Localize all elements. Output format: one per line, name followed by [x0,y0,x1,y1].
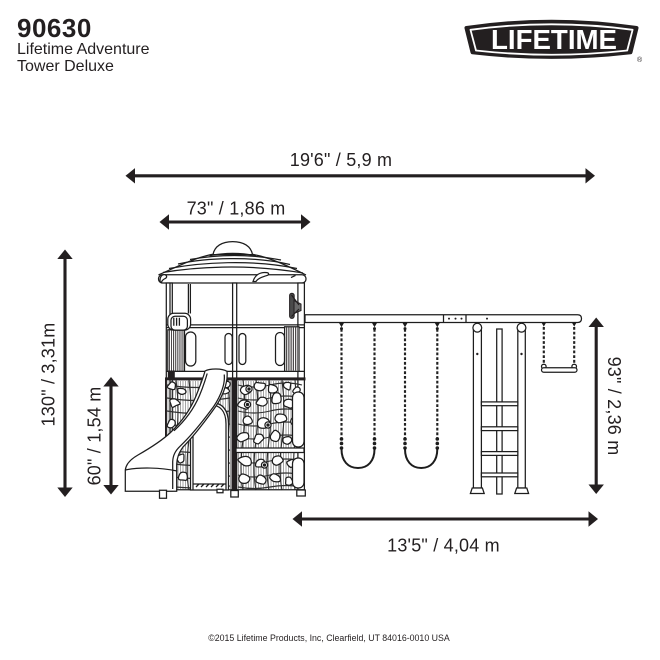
svg-text:130" / 3,31m: 130" / 3,31m [39,323,59,427]
svg-text:©2015 Lifetime Products, Inc,: ©2015 Lifetime Products, Inc, Clearfield… [208,633,450,643]
svg-text:Tower Deluxe: Tower Deluxe [17,58,114,75]
svg-text:Lifetime Adventure: Lifetime Adventure [17,41,150,58]
svg-text:90630: 90630 [17,13,92,43]
svg-text:LIFETIME: LIFETIME [491,24,617,55]
svg-text:73" / 1,86 m: 73" / 1,86 m [187,199,286,219]
svg-text:19'6" / 5,9 m: 19'6" / 5,9 m [290,150,392,170]
svg-text:93" / 2,36 m: 93" / 2,36 m [604,357,624,456]
svg-text:13'5" / 4,04 m: 13'5" / 4,04 m [387,536,500,556]
svg-text:®: ® [637,56,643,64]
svg-text:60" / 1,54 m: 60" / 1,54 m [85,387,105,486]
